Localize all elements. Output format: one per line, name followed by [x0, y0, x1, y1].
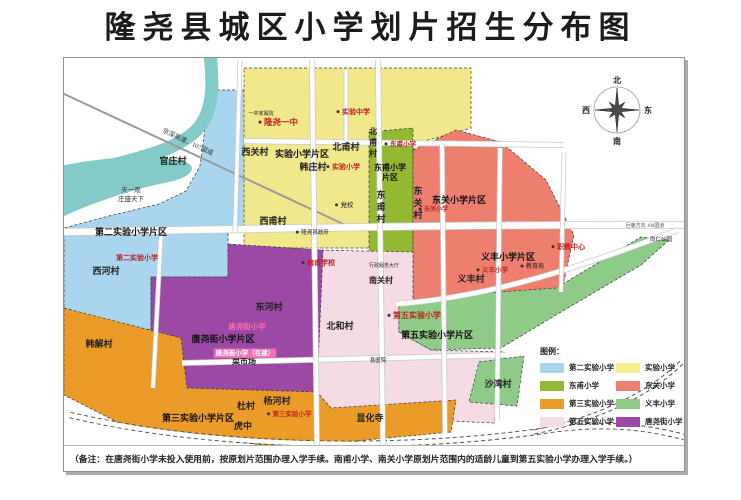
legend-swatch — [540, 363, 564, 373]
compass-south-label: 南 — [613, 136, 621, 146]
legend-label: 第二实验小学 — [569, 362, 614, 373]
legend-label: 东关小学 — [645, 380, 675, 391]
poi-dot-icon — [419, 208, 422, 211]
village-label: 北和村 — [326, 320, 353, 331]
school-label: 实验小学 — [332, 162, 360, 171]
poi-dot-icon — [327, 165, 330, 168]
poi-dot-icon — [477, 268, 480, 271]
district-label: 东甫小学 — [374, 162, 406, 172]
legend-item: 第三实验小学 — [540, 398, 614, 409]
school-label: 实验中学 — [342, 107, 370, 116]
legend-title: 图例： — [540, 346, 682, 357]
legend-item: 第二实验小学 — [540, 362, 614, 373]
poi-dot-icon — [296, 231, 299, 234]
poi-dot-icon — [259, 121, 262, 124]
legend-item: 东甫小学 — [540, 380, 614, 391]
district-label: 义丰小学片区 — [480, 251, 535, 262]
poi-dot-icon — [552, 245, 555, 248]
poi-dot-icon — [385, 142, 388, 145]
poi-dot-icon — [267, 412, 270, 415]
village-label: 杨河村 — [263, 395, 290, 406]
school-label: 第三实验小学 — [273, 409, 313, 418]
poi-dot-icon — [302, 261, 305, 264]
poi-label: 行政服务大厅 — [369, 262, 399, 269]
poi-label: 天一观 — [121, 186, 141, 194]
poi-dot-icon — [521, 265, 524, 268]
compass-east-label: 东 — [644, 105, 652, 115]
poi-dot-icon — [335, 203, 338, 206]
school-label: 东关小学 — [424, 205, 448, 213]
school-label: 唐尧街小学 — [228, 321, 266, 331]
district-label: 唐尧街小学片区 — [191, 333, 254, 344]
village-label: 西河村 — [92, 265, 119, 276]
legend-label: 第五实验小学 — [569, 416, 614, 427]
school-label: 第二实验小学 — [116, 253, 158, 262]
poi-label: 党校 — [341, 200, 355, 209]
poi-label: 县医院 — [370, 356, 387, 364]
poi-dot-icon — [337, 110, 340, 113]
village-label: 北甫村 — [369, 126, 377, 158]
poi-label: 隆尧县政府 — [301, 228, 329, 236]
legend: 图例： 第二实验小学实验小学东甫小学东关小学第三实验小学义丰小学第五实验小学唐尧… — [540, 346, 682, 427]
village-label: 杜村 — [237, 400, 255, 411]
village-label: 官庄村 — [159, 155, 186, 166]
legend-item: 东关小学 — [616, 380, 683, 391]
school-label: 唐尧街小学（在建） — [216, 348, 275, 357]
road-label: 巨鹿方向 108国道 — [626, 222, 665, 229]
legend-swatch — [540, 399, 564, 409]
village-label: 显化寺 — [356, 412, 383, 423]
village-label: 韩解村 — [85, 338, 112, 349]
legend-label: 东甫小学 — [569, 380, 599, 391]
legend-label: 唐尧街小学 — [645, 416, 683, 427]
school-label: 隆尧一中 — [264, 117, 298, 127]
village-label: 东关村 — [413, 185, 422, 220]
legend-swatch — [540, 381, 564, 391]
poi-label: 教育局 — [526, 262, 544, 270]
compass-north-label: 北 — [613, 75, 621, 85]
village-label: 义丰村 — [456, 273, 484, 284]
village-label: 西关村 — [241, 146, 268, 157]
map-frame: 京深高速、107国道北南西东第二实验小学片区实验小学片区东甫小学片区东关小学片区… — [63, 57, 685, 472]
compass-west-label: 西 — [582, 106, 590, 115]
school-label: 南甫学校 — [307, 258, 336, 267]
legend-label: 第三实验小学 — [569, 398, 614, 409]
compass-star-icon — [595, 88, 639, 132]
legend-label: 义丰小学 — [645, 398, 675, 409]
legend-swatch — [616, 417, 640, 427]
district-label: 东关小学片区 — [432, 194, 486, 205]
legend-label: 实验小学 — [645, 362, 675, 373]
legend-grid: 第二实验小学实验小学东甫小学东关小学第三实验小学义丰小学第五实验小学唐尧街小学 — [540, 362, 682, 427]
poi-label: 庄盛天下 — [118, 194, 145, 203]
legend-item: 唐尧街小学 — [616, 416, 683, 427]
legend-item: 义丰小学 — [616, 398, 683, 409]
village-label: 沙湾村 — [484, 378, 511, 389]
school-label: 第五实验小学 — [393, 310, 441, 320]
village-label: 西甫村 — [259, 215, 286, 226]
school-label: 东甫小学 — [390, 139, 417, 148]
school-label: 职教中心 — [557, 242, 585, 251]
legend-item: 实验小学 — [616, 362, 683, 373]
district-label: 实验小学片区 — [275, 148, 329, 159]
poi-label: 尚仁公园 — [650, 235, 673, 243]
page-title: 隆尧县城区小学划片招生分布图 — [0, 2, 741, 47]
village-label: 虎中 — [234, 420, 252, 431]
village-label: 东甫村 — [376, 189, 385, 224]
village-label: 北甫村 — [332, 141, 359, 152]
village-label: 韩庄村 — [299, 161, 326, 172]
legend-item: 第五实验小学 — [540, 416, 614, 427]
poi-label: 一中家属院 — [248, 110, 273, 117]
note-text: （备注：在唐尧街小学未投入使用前，按原划片范围办理入学手续。南甫小学、南关小学原… — [70, 452, 637, 465]
legend-swatch — [540, 417, 564, 427]
poi-dot-icon — [388, 314, 391, 317]
district-label: 片区 — [382, 172, 398, 182]
village-label: 南关村 — [369, 275, 393, 285]
district-label: 第五实验小学片区 — [401, 329, 473, 340]
legend-swatch — [616, 363, 640, 373]
district-label: 第三实验小学片区 — [162, 412, 234, 423]
note-strip: （备注：在唐尧街小学未投入使用前，按原划片范围办理入学手续。南甫小学、南关小学原… — [64, 445, 684, 471]
village-label: 东河村 — [255, 301, 282, 312]
district-label: 第二实验小学片区 — [95, 226, 167, 237]
legend-swatch — [616, 381, 640, 391]
legend-swatch — [616, 399, 640, 409]
school-label: 义丰小学 — [481, 265, 509, 274]
